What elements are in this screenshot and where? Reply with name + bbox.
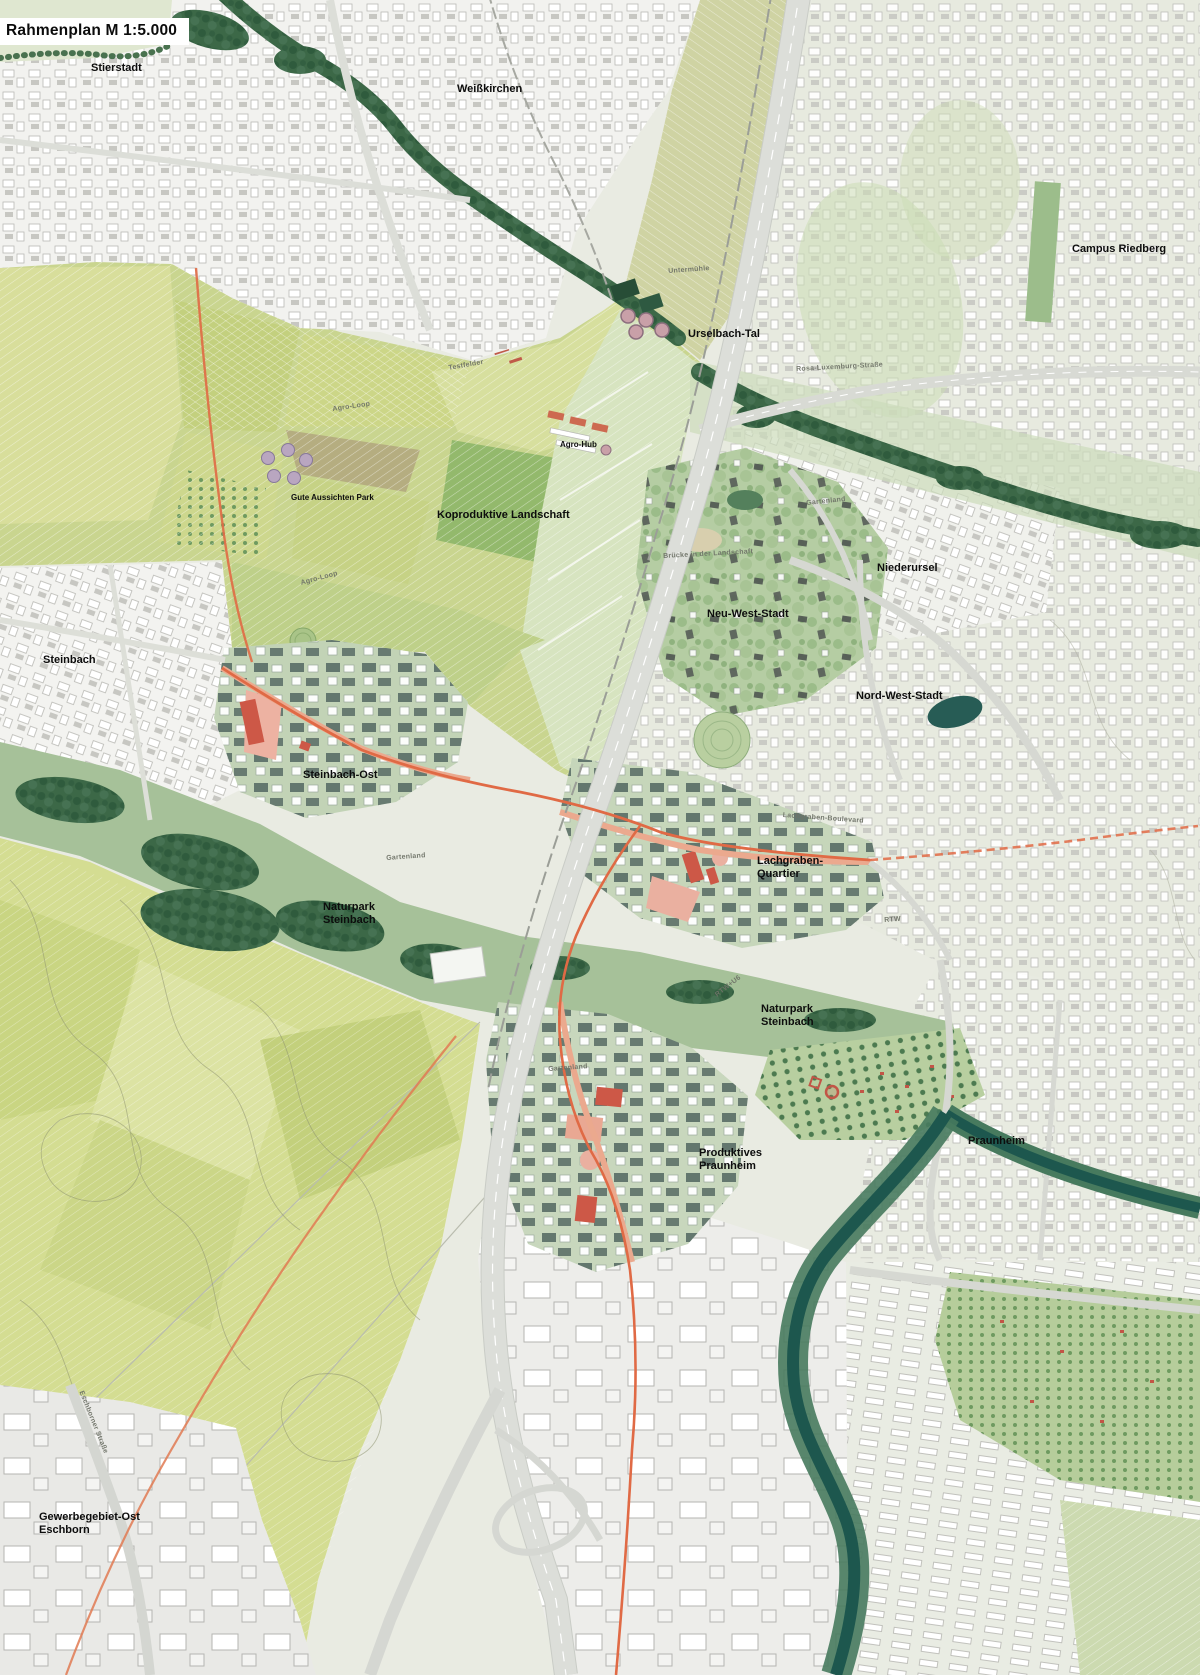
label-naturpark-steinbach-west: Naturpark Steinbach <box>323 901 376 927</box>
label-rtw: RTW <box>884 916 901 924</box>
label-produktives-praunheim: Produktives Praunheim <box>699 1147 762 1173</box>
label-naturpark-steinbach-ost: Naturpark Steinbach <box>761 1003 814 1029</box>
label-neu-west-stadt: Neu-West-Stadt <box>707 608 789 621</box>
label-koproduktive-landschaft: Koproduktive Landschaft <box>437 509 570 522</box>
label-praunheim: Praunheim <box>968 1135 1025 1148</box>
label-steinbach: Steinbach <box>43 654 96 667</box>
label-stierstadt: Stierstadt <box>91 62 142 75</box>
label-agro-hub: Agro-Hub <box>560 440 597 450</box>
label-urselbach-tal: Urselbach-Tal <box>688 328 760 341</box>
label-gute-aussichten-park: Gute Aussichten Park <box>291 493 374 503</box>
label-weisskirchen: Weißkirchen <box>457 83 522 96</box>
label-lachgraben-quartier: Lachgraben- Quartier <box>757 855 823 881</box>
rahmenplan-map: Rahmenplan M 1:5.000 Stierstadt Weißkirc… <box>0 0 1200 1675</box>
map-title: Rahmenplan M 1:5.000 <box>0 18 189 45</box>
label-nord-west-stadt: Nord-West-Stadt <box>856 690 943 703</box>
label-gewerbegebiet-ost-eschborn: Gewerbegebiet-Ost Eschborn <box>39 1511 140 1537</box>
label-niederursel: Niederursel <box>877 562 938 575</box>
label-campus-riedberg: Campus Riedberg <box>1072 243 1166 256</box>
label-steinbach-ost: Steinbach-Ost <box>303 769 378 782</box>
map-canvas <box>0 0 1200 1675</box>
